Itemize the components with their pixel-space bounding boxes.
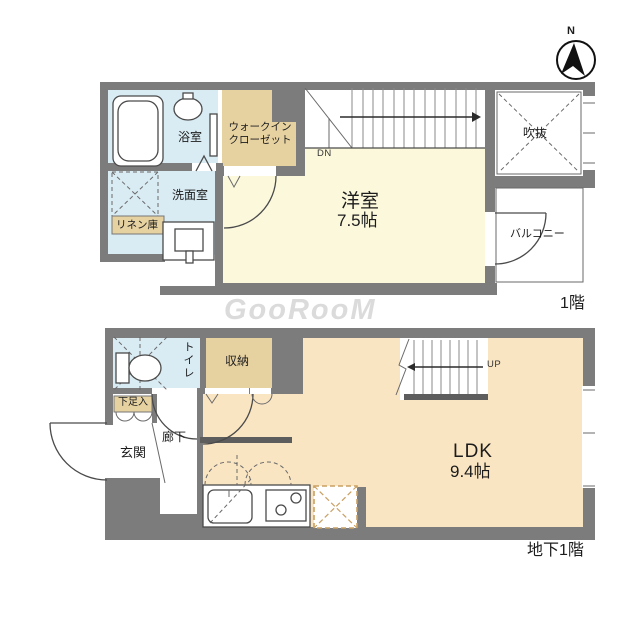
label-washroom: 洗面室 bbox=[172, 189, 208, 201]
label-stairs-up: UP bbox=[487, 360, 501, 370]
entrance-door bbox=[50, 423, 165, 483]
label-void: 吹抜 bbox=[523, 127, 547, 139]
compass-n-label: N bbox=[567, 26, 575, 37]
hall-door-gap bbox=[152, 388, 197, 394]
label-storage: 収納 bbox=[225, 355, 249, 367]
label-wic-line2: クローゼット bbox=[222, 135, 298, 146]
bath-door-gap bbox=[192, 163, 216, 171]
label-entrance: 玄関 bbox=[120, 446, 146, 459]
compass-north-icon bbox=[557, 41, 595, 79]
label-stairs-down: DN bbox=[317, 149, 332, 159]
shoe-box-door-arc bbox=[116, 412, 134, 421]
partition-stub-wall bbox=[200, 437, 292, 443]
label-floor1-name: 1階 bbox=[560, 296, 585, 312]
wic-door-gap bbox=[224, 166, 276, 176]
label-western-room: 洋室 bbox=[341, 192, 379, 211]
shoe-box-door-arc bbox=[134, 412, 152, 421]
entrance-door-arc bbox=[50, 423, 107, 480]
label-western-room-size: 7.5帖 bbox=[337, 212, 378, 229]
balcony-door-gap bbox=[485, 212, 495, 266]
label-bathroom: 浴室 bbox=[178, 131, 202, 143]
ldk-window-gap bbox=[582, 386, 595, 488]
refrigerator-space bbox=[314, 486, 357, 528]
basement-plan bbox=[50, 328, 595, 540]
bathtub-icon bbox=[113, 96, 163, 166]
label-balcony: バルコニー bbox=[510, 229, 565, 240]
watermark: GooRooM bbox=[224, 294, 377, 327]
label-hallway: 廊下 bbox=[162, 431, 186, 443]
label-toilet: トイレ bbox=[182, 341, 193, 380]
label-linen: リネン庫 bbox=[116, 220, 158, 231]
label-wic-line1: ウォークイン bbox=[222, 122, 298, 133]
floorplan-page: GooRooM N 浴室 ウォークイン クローゼット 洗面室 リネン庫 DN 洋… bbox=[0, 0, 640, 640]
storage-door-gap bbox=[250, 388, 271, 394]
label-ldk-size: 9.4帖 bbox=[450, 463, 491, 480]
kitchen-sink-icon bbox=[208, 490, 252, 523]
label-ldk: LDK bbox=[453, 442, 493, 461]
vanity-icon bbox=[163, 222, 214, 263]
room-western-upper bbox=[305, 148, 485, 176]
ldk-door-gap bbox=[205, 388, 249, 394]
stove-icon bbox=[266, 490, 306, 521]
stairs-area-f1 bbox=[305, 88, 485, 148]
label-basement-name: 地下1階 bbox=[527, 543, 584, 559]
label-shoe-box: 下足入 bbox=[118, 398, 148, 408]
